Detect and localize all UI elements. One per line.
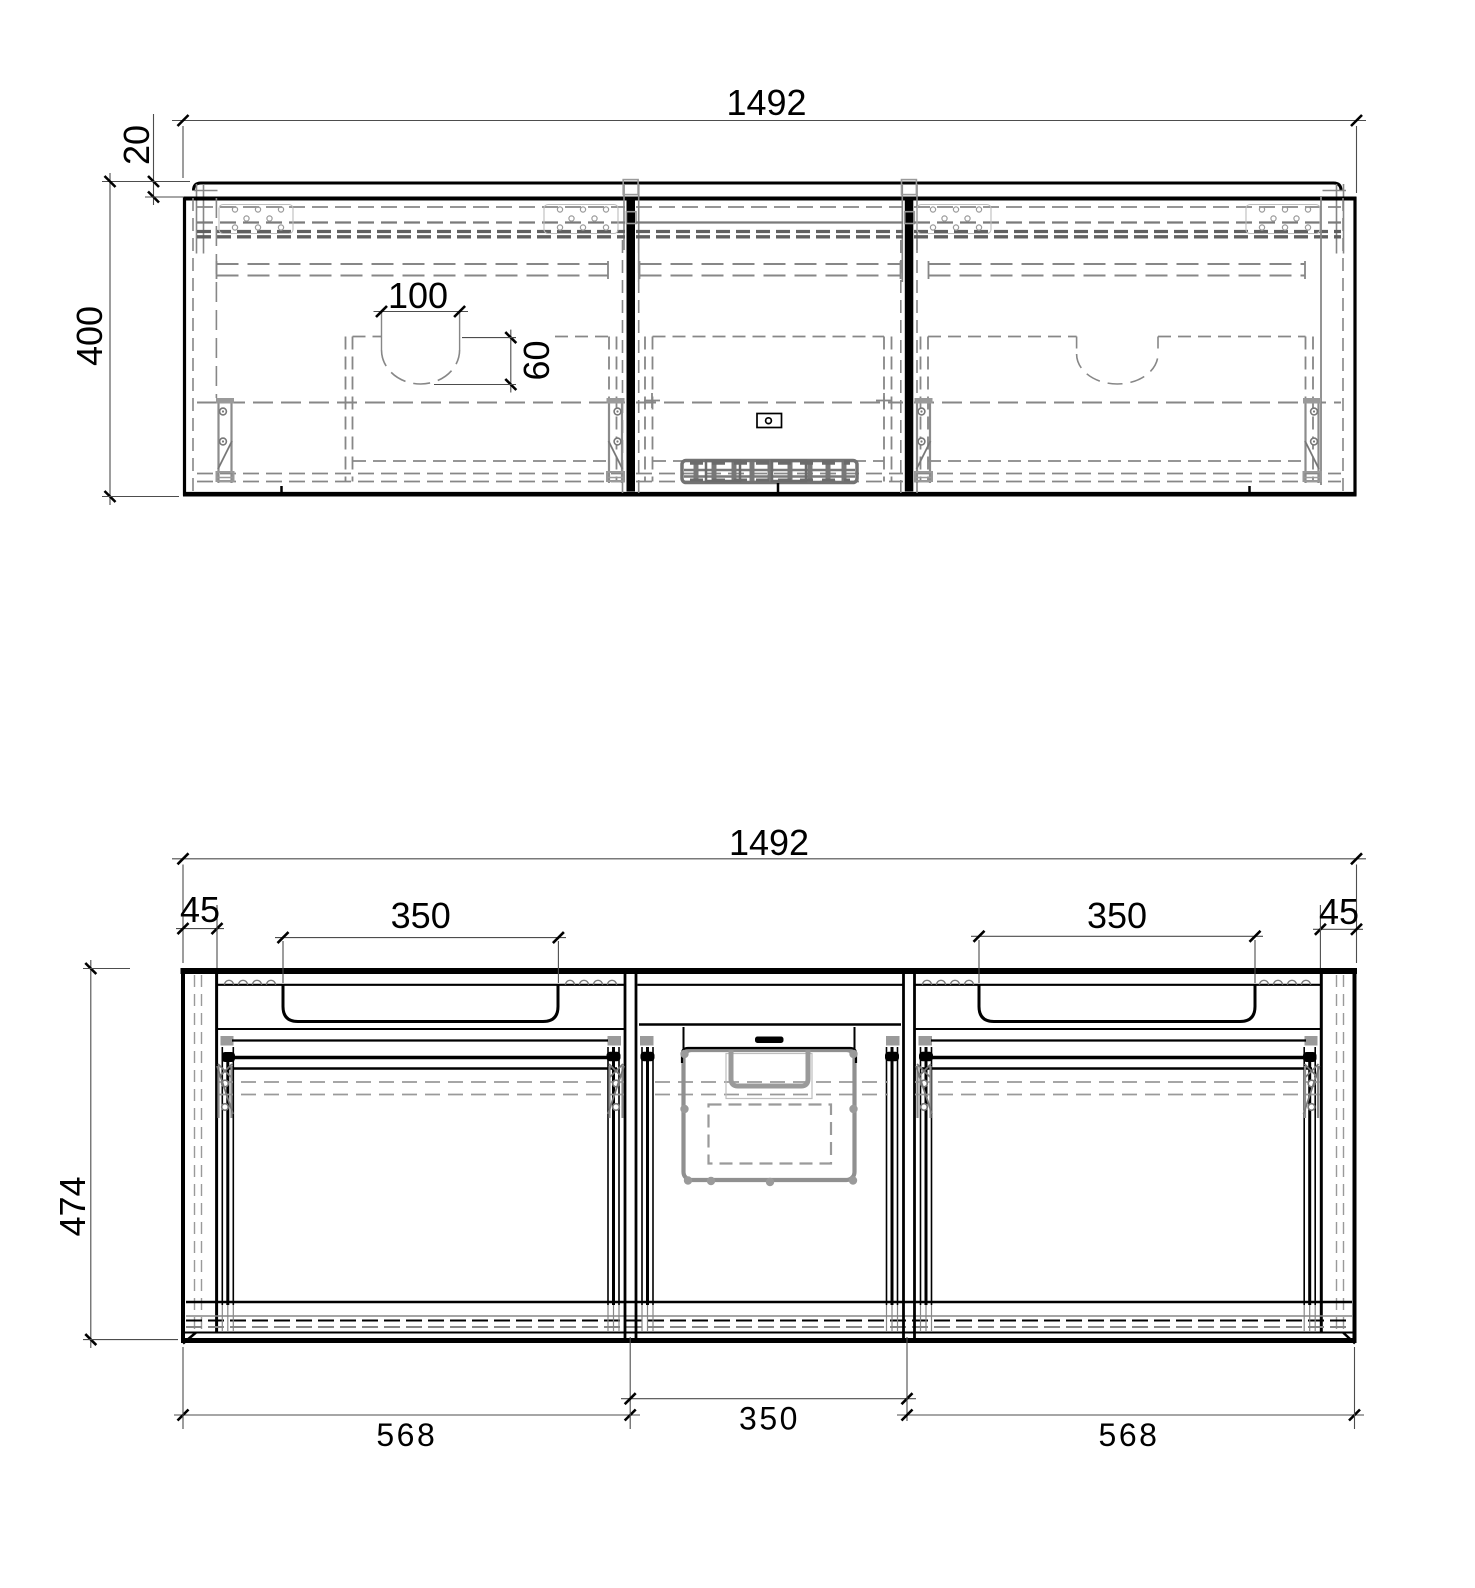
svg-text:350: 350: [739, 1401, 800, 1437]
svg-text:568: 568: [376, 1417, 437, 1453]
svg-text:350: 350: [1087, 895, 1147, 936]
svg-text:1492: 1492: [729, 822, 809, 863]
svg-text:20: 20: [116, 125, 157, 165]
svg-text:1492: 1492: [726, 82, 806, 123]
svg-text:60: 60: [516, 340, 557, 380]
svg-text:474: 474: [52, 1176, 93, 1236]
svg-text:45: 45: [180, 889, 220, 930]
svg-text:350: 350: [391, 895, 451, 936]
svg-text:568: 568: [1099, 1417, 1160, 1453]
svg-text:45: 45: [1319, 891, 1359, 932]
svg-text:400: 400: [69, 306, 110, 366]
svg-text:100: 100: [388, 275, 448, 316]
